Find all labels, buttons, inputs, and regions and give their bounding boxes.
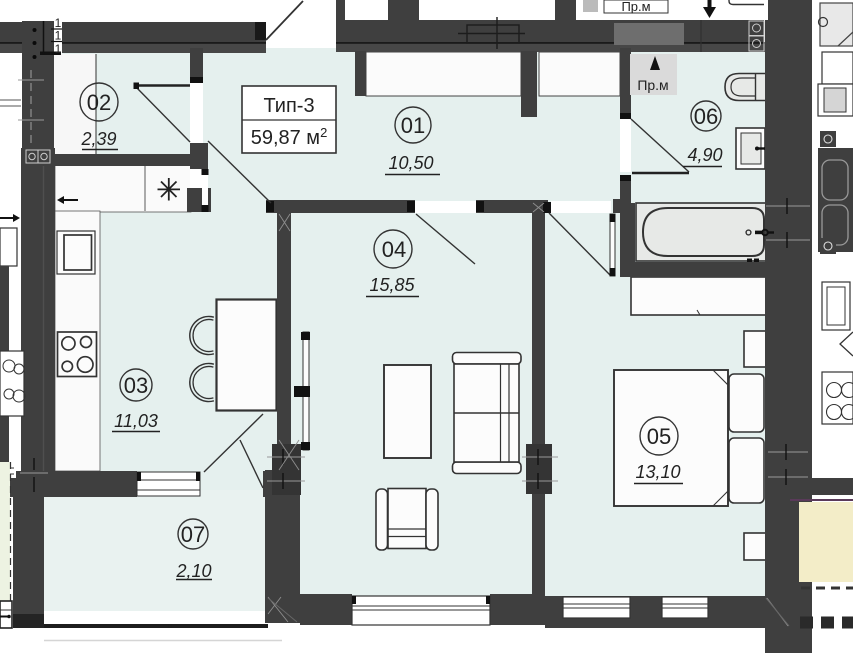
svg-text:03: 03	[124, 373, 148, 398]
svg-text:15,85: 15,85	[369, 275, 415, 295]
svg-text:59,87 м2: 59,87 м2	[251, 125, 328, 149]
svg-text:04: 04	[382, 237, 406, 262]
svg-text:2,39: 2,39	[80, 129, 116, 149]
svg-text:07: 07	[181, 522, 205, 547]
svg-text:06: 06	[694, 104, 718, 129]
svg-text:2,10: 2,10	[175, 561, 211, 581]
svg-text:10,50: 10,50	[388, 153, 433, 173]
svg-text:02: 02	[87, 90, 111, 115]
svg-text:Тип-3: Тип-3	[263, 95, 314, 117]
svg-text:11,03: 11,03	[114, 411, 158, 431]
svg-text:1: 1	[55, 29, 62, 43]
svg-text:01: 01	[401, 113, 425, 138]
svg-text:1: 1	[55, 42, 62, 56]
svg-text:Пр.м: Пр.м	[637, 77, 668, 93]
svg-text:4,90: 4,90	[687, 145, 722, 165]
svg-text:13,10: 13,10	[635, 462, 680, 482]
svg-text:05: 05	[647, 424, 671, 449]
svg-text:Пр.м: Пр.м	[621, 0, 650, 14]
